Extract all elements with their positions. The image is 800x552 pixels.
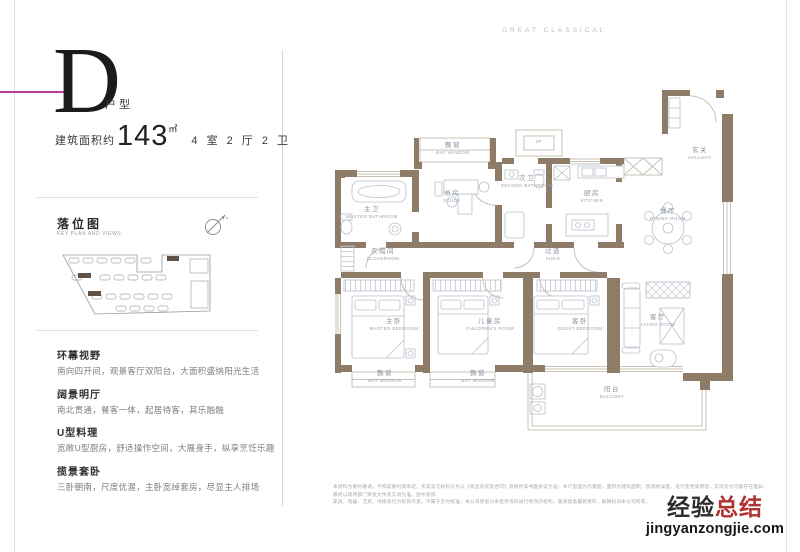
- room-name-en: KITCHEN: [581, 198, 604, 204]
- room-name-cn: 飘窗: [368, 370, 402, 378]
- feature-desc: 南北贯通，餐客一体，起居待客，其乐融融: [57, 405, 275, 416]
- brand-text: GREAT CLASSICAL: [502, 27, 606, 34]
- room-name-en: CLOAKROOM: [367, 256, 400, 262]
- room-label: 阳台BALCONY: [600, 386, 624, 400]
- panel-divider-line: [282, 50, 283, 506]
- room-name-cn: 次卫: [501, 175, 553, 183]
- room-label: 主卧MASTER BEDROOM: [370, 318, 419, 332]
- room-name-cn: 飘窗: [461, 370, 495, 378]
- right-margin-line: [786, 0, 787, 552]
- room-name-en: LIVING ROOM: [641, 322, 675, 328]
- room-label: 飘窗BAY WINDOW: [368, 370, 402, 384]
- room-name-en: DINING ROOM: [650, 216, 685, 222]
- room-label: 主卫MASTER BATHROOM: [346, 206, 398, 220]
- room-name-en: MASTER BATHROOM: [346, 214, 398, 220]
- feature-desc: 南向四开间，观景客厅双阳台，大面积盛纳阳光生活: [57, 366, 275, 377]
- area-unit: ㎡: [168, 122, 177, 135]
- room-label: 2F: [536, 139, 542, 144]
- area-label: 建筑面积约: [55, 132, 115, 151]
- room-name-cn: 餐厅: [650, 208, 685, 216]
- room-label: 厨房KITCHEN: [581, 190, 604, 204]
- room-name-cn: 主卧: [370, 318, 419, 326]
- watermark-title-red: 总结: [715, 494, 763, 520]
- key-plan-subtitle: KEY PLAN AND VIEWS: [57, 231, 121, 237]
- room-name-en: BALCONY: [600, 394, 624, 400]
- feature-item: U型料理宽敞U型厨房，舒适操作空间，大展身手，纵享烹饪乐趣: [57, 424, 275, 454]
- feature-title: U型料理: [57, 424, 275, 439]
- room-label: 书房STUDY: [443, 190, 460, 204]
- floor-plan-area: 飘窗BAY WINDOW书房STUDY主卫MASTER BATHROOM次卫SE…: [328, 84, 780, 436]
- room-label: 飘窗BAY WINDOW: [436, 142, 470, 156]
- room-name-en: MASTER BEDROOM: [370, 326, 419, 332]
- rooms-layout: 4 室 2 厅 2 卫: [191, 132, 291, 151]
- room-name-en: BAY WINDOW: [436, 150, 470, 156]
- room-name-en: STUDY: [443, 198, 460, 204]
- watermark: 经验总结 jingyanzongjie.com: [640, 496, 790, 537]
- room-name-en: BAY WINDOW: [461, 378, 495, 384]
- room-name-cn: 玄关: [688, 147, 711, 155]
- feature-title: 环幕视野: [57, 347, 275, 362]
- north-compass-icon: [202, 211, 230, 239]
- room-label: 玄关HALLWAY: [688, 147, 711, 161]
- room-label: 次卫SECOND BATHROOM: [501, 175, 553, 189]
- key-plan-section: 落位图 KEY PLAN AND VIEWS: [36, 197, 258, 331]
- unit-type-suffix: 户型: [105, 96, 133, 112]
- feature-item: 阔景明厅南北贯通，餐客一体，起居待客，其乐融融: [57, 386, 275, 416]
- key-plan-title: 落位图: [57, 215, 102, 232]
- room-name-en: AISLE: [545, 256, 561, 262]
- room-name-en: GUEST BEDROOM: [557, 326, 602, 332]
- room-name-cn: 飘窗: [436, 142, 470, 150]
- feature-item: 环幕视野南向四开间，观景客厅双阳台，大面积盛纳阳光生活: [57, 347, 275, 377]
- feature-list: 环幕视野南向四开间，观景客厅双阳台，大面积盛纳阳光生活阔景明厅南北贯通，餐客一体…: [57, 347, 275, 502]
- unit-letter: D: [53, 34, 121, 128]
- room-name-cn: 主卫: [346, 206, 398, 214]
- watermark-title-black: 经验: [667, 494, 715, 520]
- room-label: 过道AISLE: [545, 248, 561, 262]
- room-name-cn: 儿童房: [466, 318, 514, 326]
- room-name-cn: 2F: [536, 139, 542, 144]
- brochure-page: D 户型 建筑面积约 143 ㎡ 4 室 2 厅 2 卫 落位图 KEY PLA…: [0, 0, 800, 552]
- site-plan-map: [36, 244, 258, 326]
- feature-title: 阔景明厅: [57, 386, 275, 401]
- room-name-en: HALLWAY: [688, 155, 711, 161]
- room-label: 客卧GUEST BEDROOM: [557, 318, 602, 332]
- area-value: 143: [117, 122, 168, 151]
- room-name-en: SECOND BATHROOM: [501, 183, 553, 189]
- room-label: 客厅LIVING ROOM: [641, 314, 675, 328]
- room-label: 飘窗BAY WINDOW: [461, 370, 495, 384]
- area-line: 建筑面积约 143 ㎡ 4 室 2 厅 2 卫: [55, 122, 291, 151]
- room-label: 儿童房CHILDREN'S ROOM: [466, 318, 514, 332]
- room-name-cn: 客卧: [557, 318, 602, 326]
- room-name-cn: 衣帽间: [367, 248, 400, 256]
- room-name-cn: 书房: [443, 190, 460, 198]
- watermark-title: 经验总结: [640, 496, 790, 519]
- room-name-cn: 客厅: [641, 314, 675, 322]
- watermark-domain: jingyanzongjie.com: [640, 522, 790, 537]
- room-name-en: BAY WINDOW: [368, 378, 402, 384]
- feature-desc: 三卧朝南，尺度优渥，主卧宽绰套房，尽显主人排场: [57, 482, 275, 493]
- feature-item: 揽景套卧三卧朝南，尺度优渥，主卧宽绰套房，尽显主人排场: [57, 463, 275, 493]
- room-name-en: CHILDREN'S ROOM: [466, 326, 514, 332]
- feature-desc: 宽敞U型厨房，舒适操作空间，大展身手，纵享烹饪乐趣: [57, 443, 275, 454]
- room-name-cn: 过道: [545, 248, 561, 256]
- room-name-cn: 厨房: [581, 190, 604, 198]
- room-label: 餐厅DINING ROOM: [650, 208, 685, 222]
- feature-title: 揽景套卧: [57, 463, 275, 478]
- room-label: 衣帽间CLOAKROOM: [367, 248, 400, 262]
- room-name-cn: 阳台: [600, 386, 624, 394]
- left-margin-line: [14, 0, 15, 552]
